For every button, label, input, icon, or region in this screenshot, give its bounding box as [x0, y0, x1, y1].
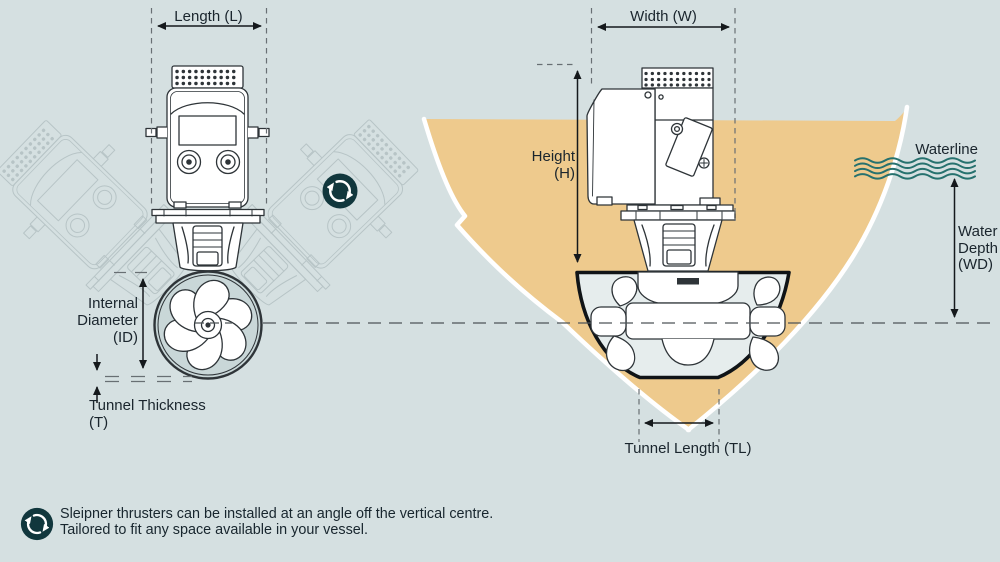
internal-diameter-line1: Internal [48, 295, 138, 312]
waterline-label: Waterline [888, 141, 978, 158]
water-depth-label: Water Depth (WD) [958, 224, 998, 274]
diagram-canvas [0, 0, 1000, 562]
internal-diameter-line3: (ID) [48, 329, 138, 346]
height-label: Height (H) [495, 148, 575, 182]
thruster-dimension-diagram: Length (L) Internal Diameter (ID) Tunnel… [0, 0, 1000, 562]
height-line1: Height [495, 148, 575, 165]
internal-diameter-line2: Diameter [48, 312, 138, 329]
internal-diameter-label: Internal Diameter (ID) [48, 295, 138, 346]
length-label: Length (L) [150, 8, 267, 25]
footer-note: Sleipner thrusters can be installed at a… [60, 507, 493, 539]
height-line2: (H) [495, 165, 575, 182]
rotation-icon [323, 174, 358, 209]
width-label: Width (W) [592, 8, 735, 25]
tunnel-thickness-label: Tunnel Thickness (T) [89, 397, 206, 431]
rotation-icon-footer [21, 508, 53, 540]
footer-line2: Tailored to fit any space available in y… [60, 523, 493, 539]
tunnel-length-label: Tunnel Length (TL) [592, 440, 784, 457]
water-depth-line3: (WD) [958, 257, 998, 274]
tunnel-thickness-line2: (T) [89, 414, 206, 431]
water-depth-line1: Water [958, 224, 998, 241]
water-depth-line2: Depth [958, 241, 998, 258]
footer-line1: Sleipner thrusters can be installed at a… [60, 507, 493, 523]
tunnel-thickness-line1: Tunnel Thickness [89, 397, 206, 414]
propeller [155, 272, 262, 379]
